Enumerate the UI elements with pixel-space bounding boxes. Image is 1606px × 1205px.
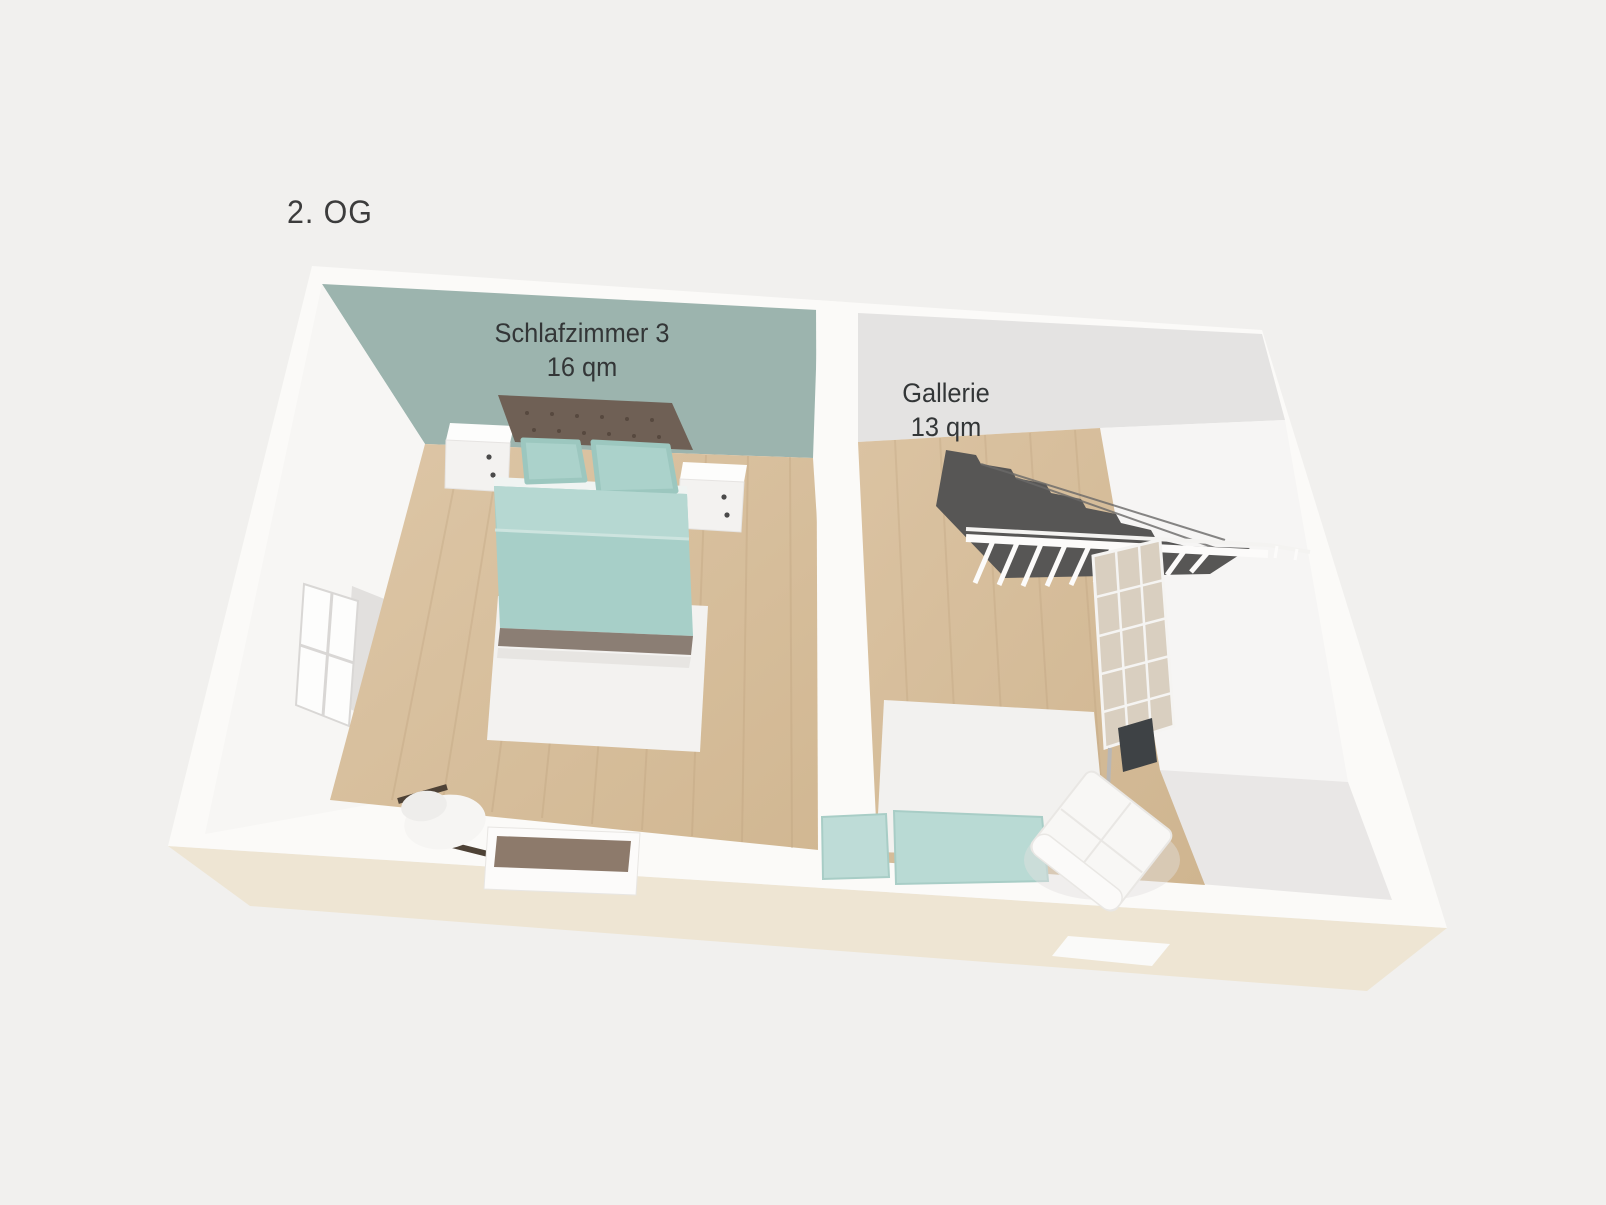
floorplan-3d-view [0, 0, 1606, 1205]
nightstand-right [678, 462, 747, 532]
double-bed [494, 486, 693, 668]
sofa-teal [822, 811, 1048, 884]
dresser [484, 827, 640, 895]
floorplan-3d-scene: 2. OG Schlafzimmer 3 16 qm Gallerie 13 q… [0, 0, 1606, 1205]
gallery-back-wall [858, 313, 1285, 442]
